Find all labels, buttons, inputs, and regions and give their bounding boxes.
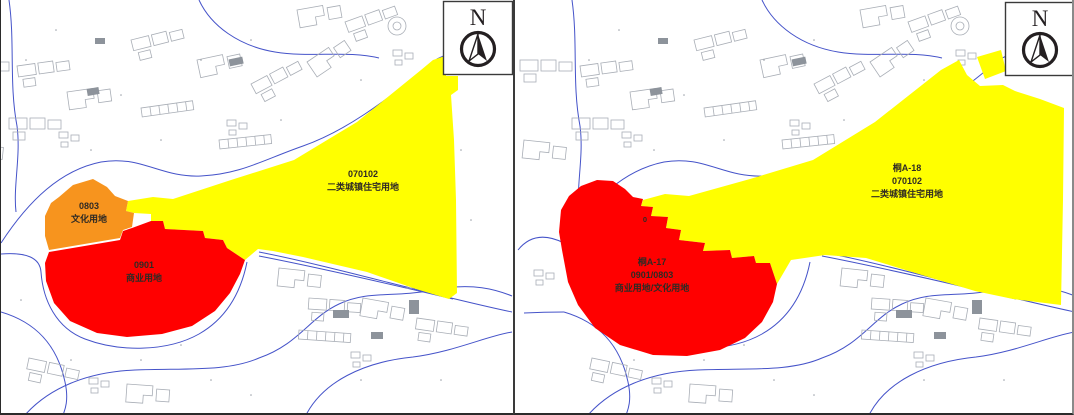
- north-arrow: [1006, 3, 1073, 76]
- commercial-plot-label: 桐A-17: [638, 256, 667, 267]
- map-after: 桐A-18 070102 二类城镇住宅用地 桐A-17 0901/0803 商业…: [515, 0, 1072, 413]
- commercial-name-label: 商业用地/文化用地: [615, 282, 690, 293]
- cultural-code-label: 0803: [79, 201, 99, 211]
- panel-before-adjustment: 070102 二类城镇住宅用地 0803 文化用地 0901 商业用地: [0, 0, 513, 415]
- north-arrow: [444, 2, 513, 75]
- map-before: 070102 二类城镇住宅用地 0803 文化用地 0901 商业用地: [1, 0, 513, 413]
- commercial-name-label: 商业用地: [126, 272, 162, 283]
- planning-map-sheet: N 070102 二类城镇住宅用地 0803 文化用地 0901 商业用地: [0, 0, 1074, 415]
- residential-name-label: 二类城镇住宅用地: [871, 188, 943, 199]
- stray-zero-label: 0: [643, 215, 647, 224]
- residential-plot-label: 桐A-18: [893, 162, 922, 173]
- residential-name-label: 二类城镇住宅用地: [327, 181, 399, 192]
- commercial-code-label: 0901/0803: [631, 270, 674, 280]
- cultural-name-label: 文化用地: [70, 213, 107, 224]
- panel-after-adjustment: 桐A-18 070102 二类城镇住宅用地 桐A-17 0901/0803 商业…: [513, 0, 1074, 415]
- residential-code-label: 070102: [348, 169, 378, 179]
- commercial-code-label: 0901: [134, 260, 154, 270]
- residential-code-label: 070102: [892, 176, 922, 186]
